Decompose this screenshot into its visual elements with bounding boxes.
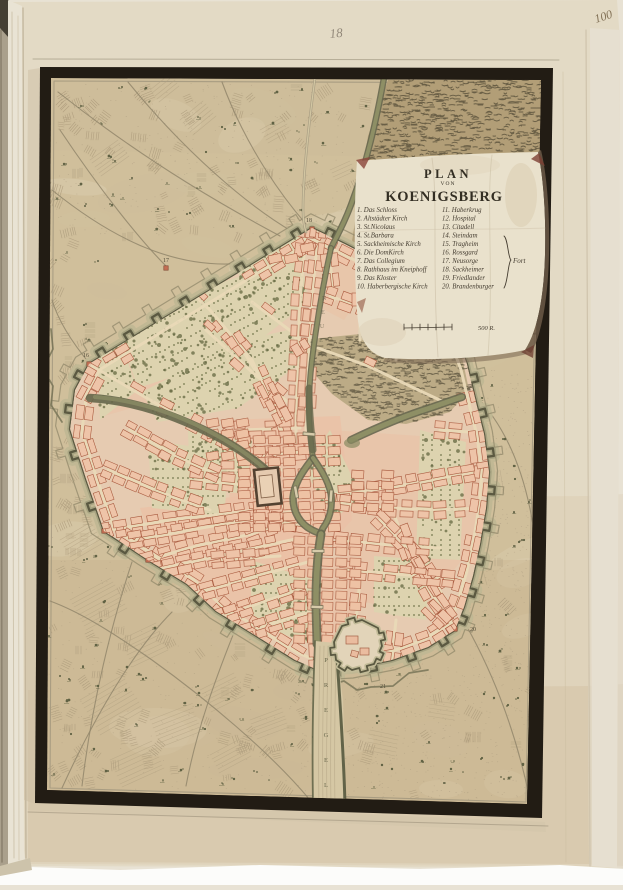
svg-text:8. Rathhaus im Kneiphoff: 8. Rathhaus im Kneiphoff <box>357 267 428 274</box>
svg-text:14. Steindam: 14. Steindam <box>442 233 478 240</box>
svg-text:KOENIGSBERG: KOENIGSBERG <box>385 189 503 205</box>
svg-text:VON: VON <box>441 181 456 187</box>
svg-text:11. Haberkrug: 11. Haberkrug <box>442 207 482 214</box>
svg-text:4. St.Barbara: 4. St.Barbara <box>357 233 394 240</box>
svg-text:3. St.Nicolaus: 3. St.Nicolaus <box>356 224 395 231</box>
svg-text:15. Tragheim: 15. Tragheim <box>442 241 478 248</box>
svg-text:13. Citadell: 13. Citadell <box>442 224 474 231</box>
svg-text:PLAN: PLAN <box>424 167 472 181</box>
svg-text:2. Altstädter Kirch: 2. Altstädter Kirch <box>357 216 408 223</box>
svg-text:16. Rossgard: 16. Rossgard <box>442 250 478 257</box>
svg-text:17. Neusorge: 17. Neusorge <box>442 258 478 265</box>
svg-text:5. Sackheimische Kirch: 5. Sackheimische Kirch <box>357 241 421 248</box>
svg-text:18: 18 <box>329 25 344 41</box>
svg-text:10. Haberbergische Kirch: 10. Haberbergische Kirch <box>357 284 428 291</box>
svg-text:19. Friedlander: 19. Friedlander <box>442 275 485 282</box>
svg-text:18. Sackheimer: 18. Sackheimer <box>442 267 484 274</box>
svg-text:Fort: Fort <box>512 257 527 265</box>
svg-text:1. Das Schloss: 1. Das Schloss <box>357 207 397 214</box>
svg-text:500 R.: 500 R. <box>478 325 495 332</box>
svg-text:7. Das Collegium: 7. Das Collegium <box>357 258 405 265</box>
svg-text:20. Brandenburger: 20. Brandenburger <box>442 284 494 291</box>
svg-text:12. Hospital: 12. Hospital <box>442 216 476 223</box>
svg-text:9. Das Kloster: 9. Das Kloster <box>357 275 397 282</box>
svg-text:6. Die DomKirch: 6. Die DomKirch <box>357 250 404 257</box>
